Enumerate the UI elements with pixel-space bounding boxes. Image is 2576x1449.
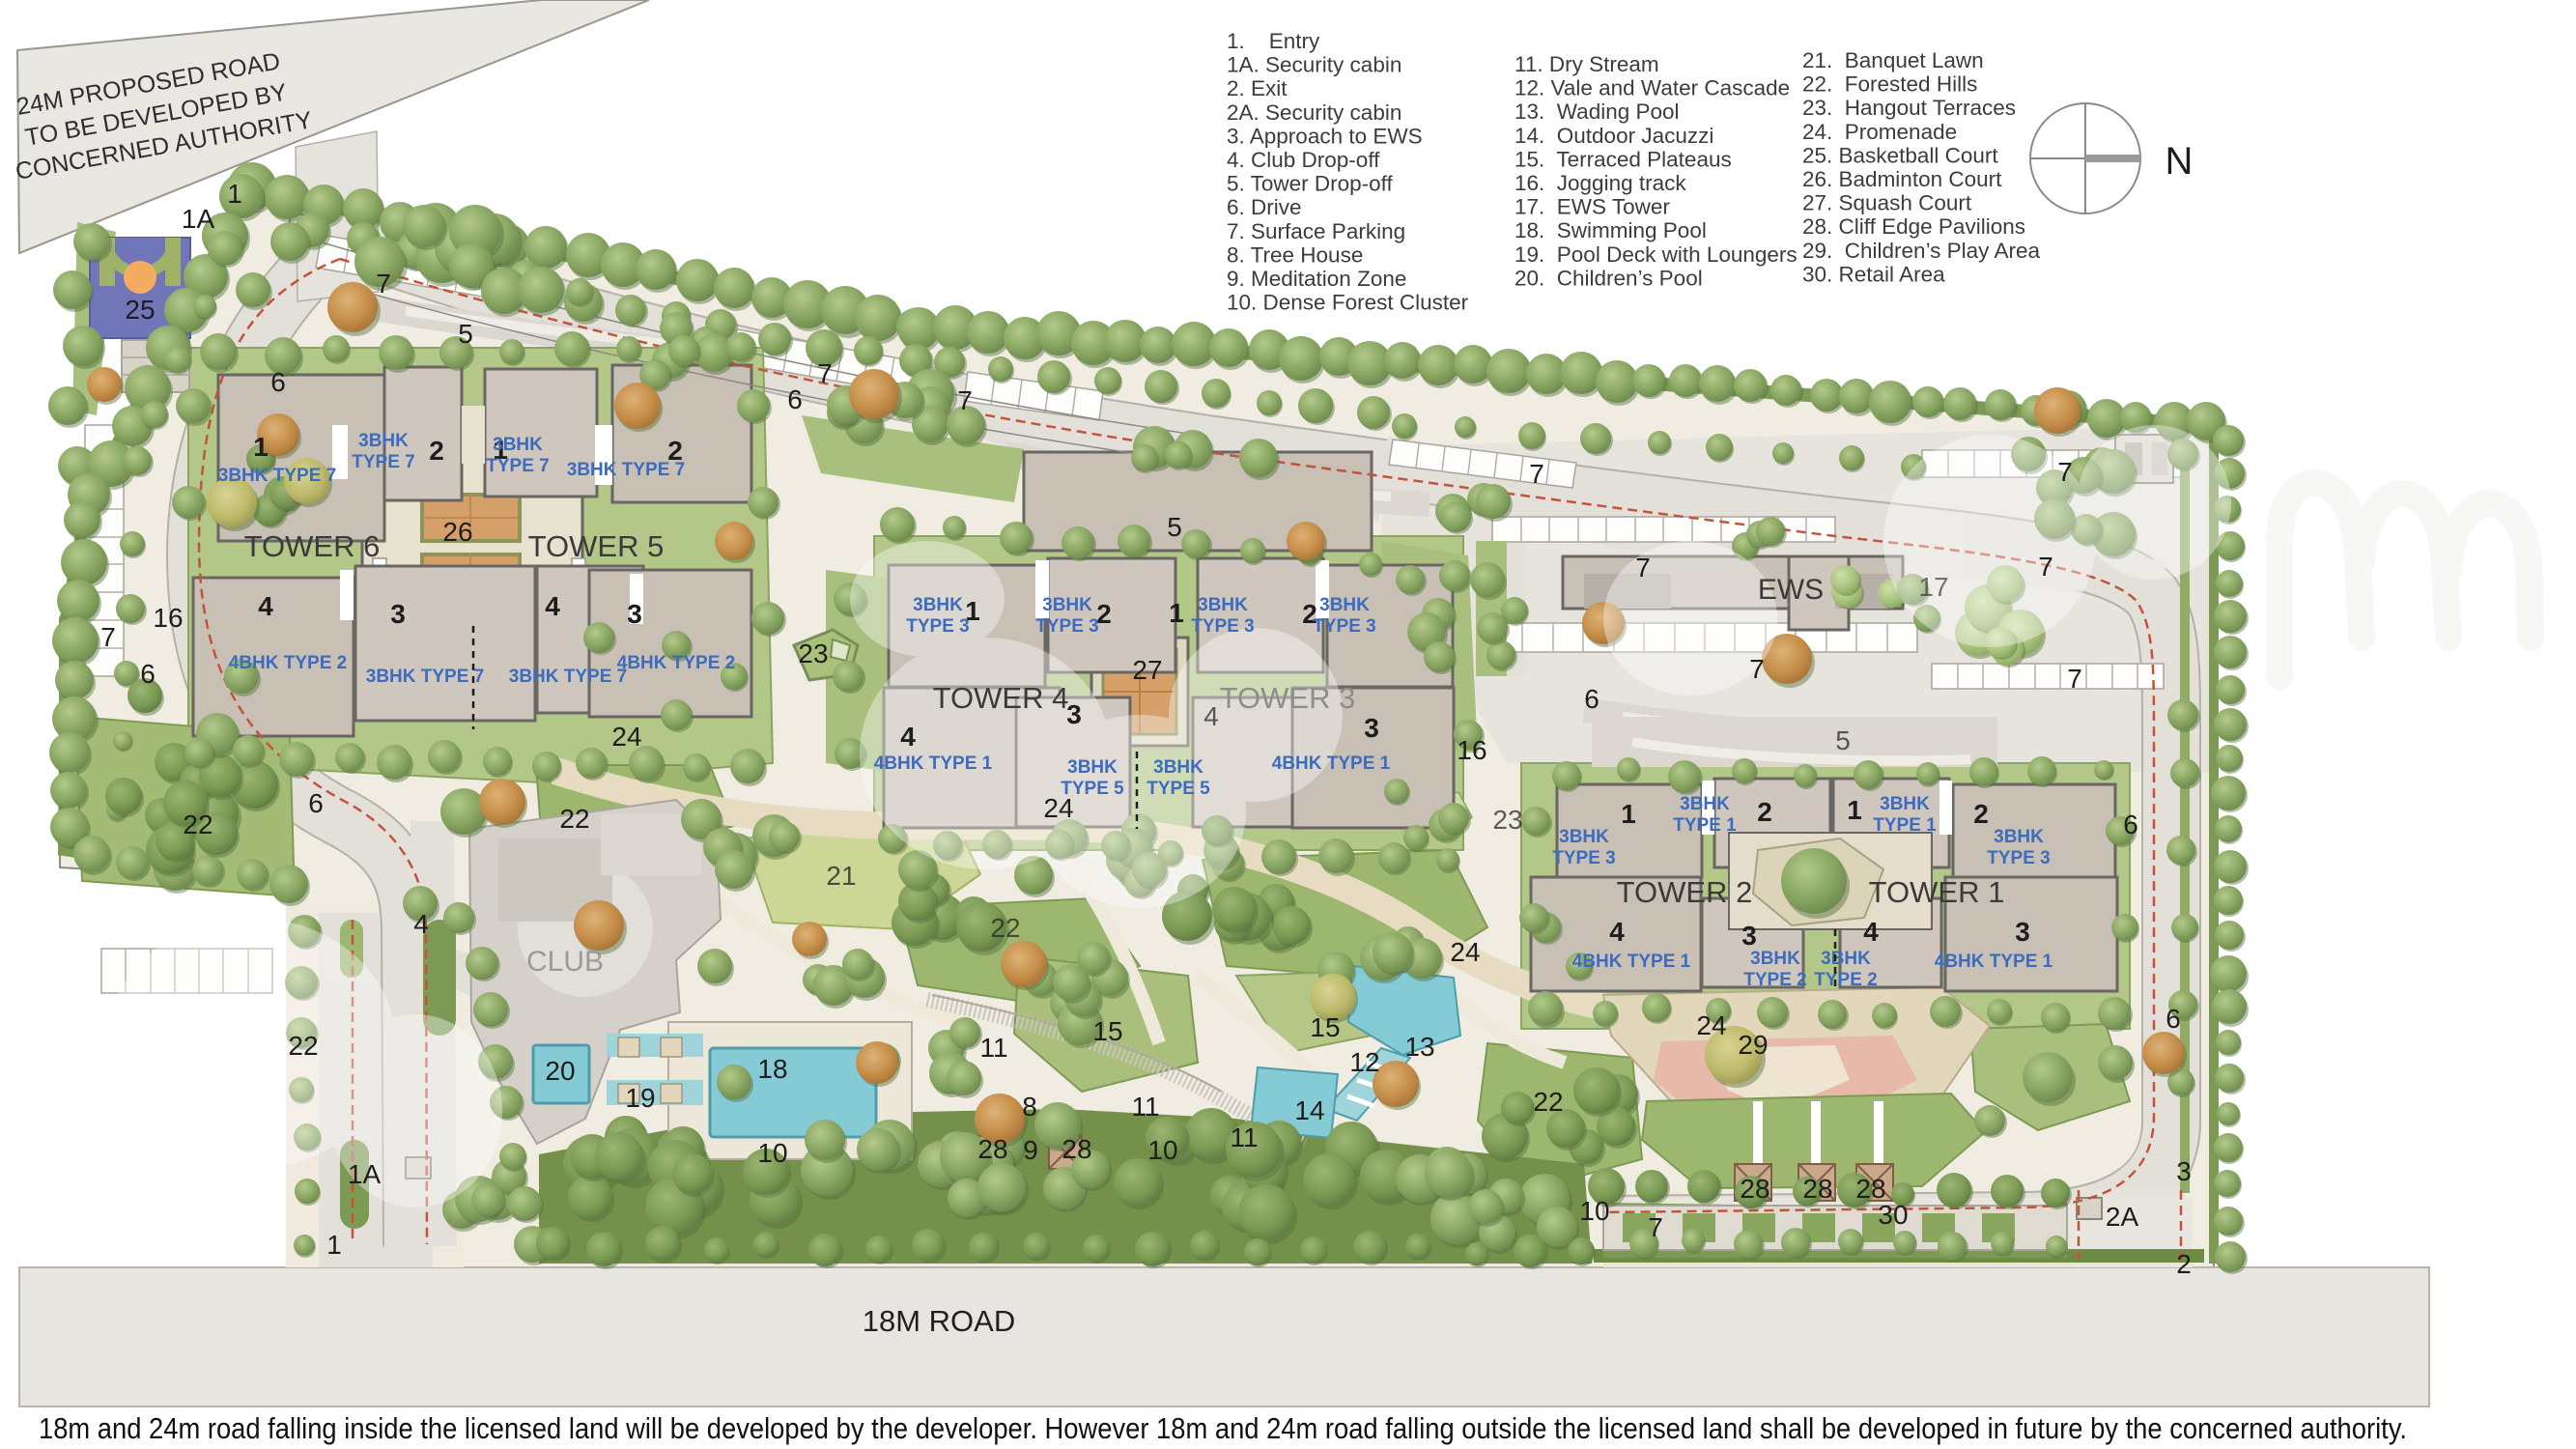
- svg-text:16: 16: [1457, 735, 1486, 765]
- svg-text:4: 4: [413, 909, 429, 939]
- svg-text:TYPE 2: TYPE 2: [1743, 970, 1806, 990]
- svg-text:TOWER 2: TOWER 2: [1617, 875, 1753, 909]
- svg-text:4: 4: [1203, 701, 1219, 731]
- svg-text:3BHK TYPE 7: 3BHK TYPE 7: [218, 466, 336, 486]
- svg-text:7: 7: [957, 385, 973, 415]
- svg-text:18. Swimming Pool: 18. Swimming Pool: [1514, 218, 1707, 242]
- svg-text:TYPE 3: TYPE 3: [1987, 848, 2050, 868]
- svg-text:3BHK: 3BHK: [1994, 827, 2044, 847]
- svg-text:4. Club Drop-off: 4. Club Drop-off: [1227, 148, 1380, 172]
- svg-text:21: 21: [826, 861, 856, 891]
- svg-text:10: 10: [1147, 1135, 1177, 1165]
- svg-text:27. Squash Court: 27. Squash Court: [1802, 191, 1972, 215]
- svg-text:3: 3: [2015, 917, 2030, 947]
- svg-text:7. Surface Parking: 7. Surface Parking: [1227, 219, 1405, 243]
- svg-text:22: 22: [559, 804, 589, 834]
- svg-text:5: 5: [1835, 725, 1851, 755]
- svg-text:3BHK: 3BHK: [1319, 595, 1370, 615]
- svg-text:3BHK: 3BHK: [358, 431, 409, 451]
- svg-text:24. Promenade: 24. Promenade: [1802, 120, 1957, 144]
- svg-text:6. Drive: 6. Drive: [1227, 195, 1302, 219]
- svg-text:TOWER 6: TOWER 6: [244, 529, 381, 563]
- svg-text:4: 4: [1863, 917, 1879, 947]
- svg-text:9. Meditation Zone: 9. Meditation Zone: [1227, 267, 1406, 291]
- svg-text:3BHK: 3BHK: [1750, 949, 1800, 969]
- svg-text:6: 6: [140, 659, 156, 689]
- svg-text:25. Basketball Court: 25. Basketball Court: [1802, 143, 1998, 167]
- svg-text:8: 8: [1022, 1092, 1037, 1122]
- svg-text:17. EWS Tower: 17. EWS Tower: [1514, 195, 1670, 219]
- svg-text:TYPE 3: TYPE 3: [1191, 616, 1254, 637]
- svg-text:18M ROAD: 18M ROAD: [863, 1304, 1015, 1338]
- svg-text:7: 7: [1648, 1212, 1663, 1242]
- svg-text:CLUB: CLUB: [526, 946, 604, 978]
- svg-text:3BHK: 3BHK: [1153, 757, 1203, 778]
- svg-text:12. Vale and Water Cascade: 12. Vale and Water Cascade: [1514, 76, 1790, 100]
- svg-text:6: 6: [270, 367, 286, 397]
- svg-text:23: 23: [798, 639, 828, 668]
- svg-text:2: 2: [2176, 1249, 2192, 1279]
- svg-text:7: 7: [2067, 664, 2082, 694]
- svg-text:4BHK TYPE 1: 4BHK TYPE 1: [874, 753, 993, 774]
- svg-text:4: 4: [545, 591, 560, 621]
- svg-text:2: 2: [429, 436, 444, 466]
- svg-text:7: 7: [817, 358, 833, 388]
- svg-text:5: 5: [458, 319, 473, 349]
- svg-text:7: 7: [2038, 552, 2053, 582]
- svg-text:3. Approach to EWS: 3. Approach to EWS: [1227, 124, 1423, 148]
- svg-text:3BHK: 3BHK: [1680, 794, 1730, 814]
- svg-text:N: N: [2166, 140, 2194, 183]
- svg-text:TYPE 7: TYPE 7: [486, 456, 549, 476]
- svg-text:7: 7: [1749, 654, 1765, 684]
- svg-text:TOWER 1: TOWER 1: [1869, 875, 2005, 909]
- svg-text:7: 7: [1529, 459, 1544, 489]
- svg-text:28: 28: [1802, 1174, 1832, 1204]
- svg-text:2: 2: [1973, 799, 1989, 829]
- svg-text:5. Tower Drop-off: 5. Tower Drop-off: [1227, 172, 1393, 196]
- svg-text:30: 30: [1878, 1200, 1908, 1230]
- svg-text:15: 15: [1092, 1016, 1122, 1046]
- svg-text:3BHK TYPE 7: 3BHK TYPE 7: [567, 460, 685, 480]
- svg-text:28. Cliff Edge Pavilions: 28. Cliff Edge Pavilions: [1802, 214, 2025, 239]
- svg-text:22: 22: [990, 913, 1020, 943]
- svg-text:3BHK: 3BHK: [1559, 827, 1609, 847]
- svg-text:TYPE 5: TYPE 5: [1146, 779, 1210, 799]
- svg-text:7: 7: [100, 622, 116, 652]
- svg-text:TYPE 5: TYPE 5: [1061, 779, 1124, 799]
- svg-text:17: 17: [1918, 572, 1948, 602]
- svg-text:10: 10: [1579, 1196, 1609, 1226]
- svg-text:3BHK TYPE 7: 3BHK TYPE 7: [366, 667, 484, 687]
- svg-text:2. Exit: 2. Exit: [1227, 76, 1288, 100]
- svg-text:4BHK TYPE 2: 4BHK TYPE 2: [617, 653, 735, 673]
- svg-text:TYPE 3: TYPE 3: [1035, 616, 1098, 637]
- svg-text:TOWER 3: TOWER 3: [1220, 681, 1356, 715]
- svg-text:3BHK: 3BHK: [1198, 595, 1248, 615]
- svg-text:12: 12: [1349, 1047, 1379, 1077]
- svg-text:29: 29: [1738, 1030, 1768, 1060]
- svg-text:4: 4: [1609, 917, 1625, 947]
- svg-text:11. Dry Stream: 11. Dry Stream: [1514, 52, 1659, 76]
- svg-text:TYPE 3: TYPE 3: [1313, 616, 1375, 637]
- svg-text:6: 6: [308, 788, 324, 818]
- svg-text:15. Terraced Plateaus: 15. Terraced Plateaus: [1514, 147, 1732, 171]
- svg-text:1A: 1A: [182, 204, 215, 234]
- svg-text:3: 3: [1741, 921, 1757, 951]
- svg-text:3BHK: 3BHK: [1821, 949, 1871, 969]
- svg-text:1: 1: [253, 432, 269, 462]
- svg-text:TYPE 3: TYPE 3: [906, 616, 969, 637]
- svg-text:EWS: EWS: [1758, 574, 1824, 606]
- svg-text:11: 11: [1230, 1122, 1258, 1152]
- svg-text:4: 4: [900, 722, 916, 752]
- svg-text:28: 28: [1740, 1174, 1769, 1204]
- svg-text:3BHK: 3BHK: [1042, 595, 1092, 615]
- svg-text:22. Forested Hills: 22. Forested Hills: [1802, 72, 1977, 97]
- svg-text:3BHK TYPE 7: 3BHK TYPE 7: [509, 667, 627, 687]
- svg-text:3BHK: 3BHK: [493, 435, 543, 455]
- svg-text:20. Children’s Pool: 20. Children’s Pool: [1514, 266, 1703, 290]
- svg-text:11: 11: [979, 1033, 1007, 1063]
- svg-text:1. Entry: 1. Entry: [1227, 29, 1320, 53]
- svg-text:2A. Security cabin: 2A. Security cabin: [1227, 100, 1401, 125]
- svg-text:3: 3: [627, 599, 642, 629]
- svg-text:4BHK TYPE 1: 4BHK TYPE 1: [1572, 952, 1691, 972]
- svg-text:4BHK TYPE 2: 4BHK TYPE 2: [229, 653, 347, 673]
- svg-text:4BHK TYPE 1: 4BHK TYPE 1: [1935, 952, 2053, 972]
- svg-text:TYPE 1: TYPE 1: [1673, 815, 1737, 836]
- svg-text:3: 3: [390, 599, 406, 629]
- svg-text:3BHK: 3BHK: [1880, 794, 1930, 814]
- svg-text:TYPE 2: TYPE 2: [1814, 970, 1877, 990]
- svg-text:26. Badminton Court: 26. Badminton Court: [1802, 167, 2002, 191]
- svg-text:TYPE 7: TYPE 7: [352, 452, 414, 472]
- svg-text:14: 14: [1294, 1095, 1324, 1125]
- svg-text:13. Wading Pool: 13. Wading Pool: [1514, 99, 1680, 124]
- svg-text:2: 2: [1757, 797, 1772, 827]
- svg-text:28: 28: [1062, 1134, 1091, 1164]
- svg-text:7: 7: [2057, 457, 2073, 487]
- svg-text:19: 19: [625, 1083, 655, 1113]
- svg-text:7: 7: [376, 269, 391, 298]
- svg-text:6: 6: [787, 384, 803, 414]
- svg-text:TYPE 1: TYPE 1: [1873, 815, 1937, 836]
- svg-text:4: 4: [258, 591, 273, 621]
- svg-text:19. Pool Deck with Loungers: 19. Pool Deck with Loungers: [1514, 242, 1798, 267]
- svg-text:8. Tree House: 8. Tree House: [1227, 242, 1363, 267]
- svg-text:3: 3: [2176, 1156, 2192, 1186]
- svg-text:1A. Security cabin: 1A. Security cabin: [1227, 53, 1401, 77]
- svg-text:24: 24: [1450, 937, 1480, 967]
- svg-text:6: 6: [2123, 810, 2138, 839]
- svg-text:16: 16: [153, 603, 183, 633]
- svg-text:24: 24: [1696, 1010, 1726, 1040]
- svg-text:23. Hangout Terraces: 23. Hangout Terraces: [1802, 96, 2016, 120]
- svg-text:10. Dense Forest Cluster: 10. Dense Forest Cluster: [1227, 291, 1469, 315]
- svg-text:13: 13: [1404, 1032, 1434, 1062]
- svg-text:TOWER 5: TOWER 5: [528, 529, 665, 563]
- svg-text:22: 22: [288, 1031, 318, 1061]
- svg-text:1: 1: [1847, 795, 1862, 825]
- svg-text:22: 22: [183, 810, 212, 839]
- svg-text:2A: 2A: [2106, 1202, 2139, 1232]
- svg-text:25: 25: [125, 295, 155, 325]
- svg-text:16. Jogging track: 16. Jogging track: [1514, 171, 1686, 195]
- svg-text:1: 1: [227, 179, 242, 209]
- svg-text:9: 9: [1023, 1135, 1038, 1165]
- svg-text:5: 5: [1167, 512, 1182, 542]
- svg-text:3BHK: 3BHK: [913, 595, 963, 615]
- svg-text:TYPE 3: TYPE 3: [1552, 848, 1615, 868]
- svg-text:11: 11: [1131, 1092, 1159, 1122]
- svg-text:27: 27: [1132, 655, 1162, 685]
- svg-text:21. Banquet Lawn: 21. Banquet Lawn: [1802, 48, 1984, 72]
- svg-text:6: 6: [1584, 684, 1599, 714]
- svg-text:28: 28: [977, 1134, 1007, 1164]
- svg-text:14. Outdoor Jacuzzi: 14. Outdoor Jacuzzi: [1514, 124, 1713, 148]
- svg-text:26: 26: [442, 517, 472, 547]
- svg-text:22: 22: [1533, 1087, 1563, 1117]
- svg-text:1: 1: [326, 1230, 342, 1260]
- svg-text:1: 1: [1169, 598, 1184, 628]
- svg-text:23: 23: [1492, 805, 1522, 835]
- svg-text:1A: 1A: [348, 1159, 382, 1189]
- svg-text:7: 7: [1635, 553, 1651, 582]
- svg-text:30. Retail Area: 30. Retail Area: [1802, 262, 1945, 286]
- svg-text:15: 15: [1310, 1012, 1340, 1042]
- svg-text:18: 18: [757, 1054, 787, 1084]
- svg-text:TOWER 4: TOWER 4: [933, 681, 1069, 715]
- svg-text:18m and 24m road falling insid: 18m and 24m road falling inside the lice…: [39, 1411, 2407, 1445]
- svg-text:20: 20: [545, 1056, 575, 1086]
- svg-text:6: 6: [2166, 1004, 2181, 1034]
- svg-text:3: 3: [1364, 713, 1379, 743]
- svg-text:4BHK TYPE 1: 4BHK TYPE 1: [1272, 753, 1391, 774]
- svg-text:1: 1: [1621, 799, 1636, 829]
- svg-text:3BHK: 3BHK: [1067, 757, 1118, 778]
- svg-text:3: 3: [1066, 699, 1082, 729]
- svg-text:29. Children’s Play Area: 29. Children’s Play Area: [1802, 239, 2040, 263]
- svg-text:10: 10: [757, 1138, 787, 1168]
- svg-text:24: 24: [611, 722, 641, 752]
